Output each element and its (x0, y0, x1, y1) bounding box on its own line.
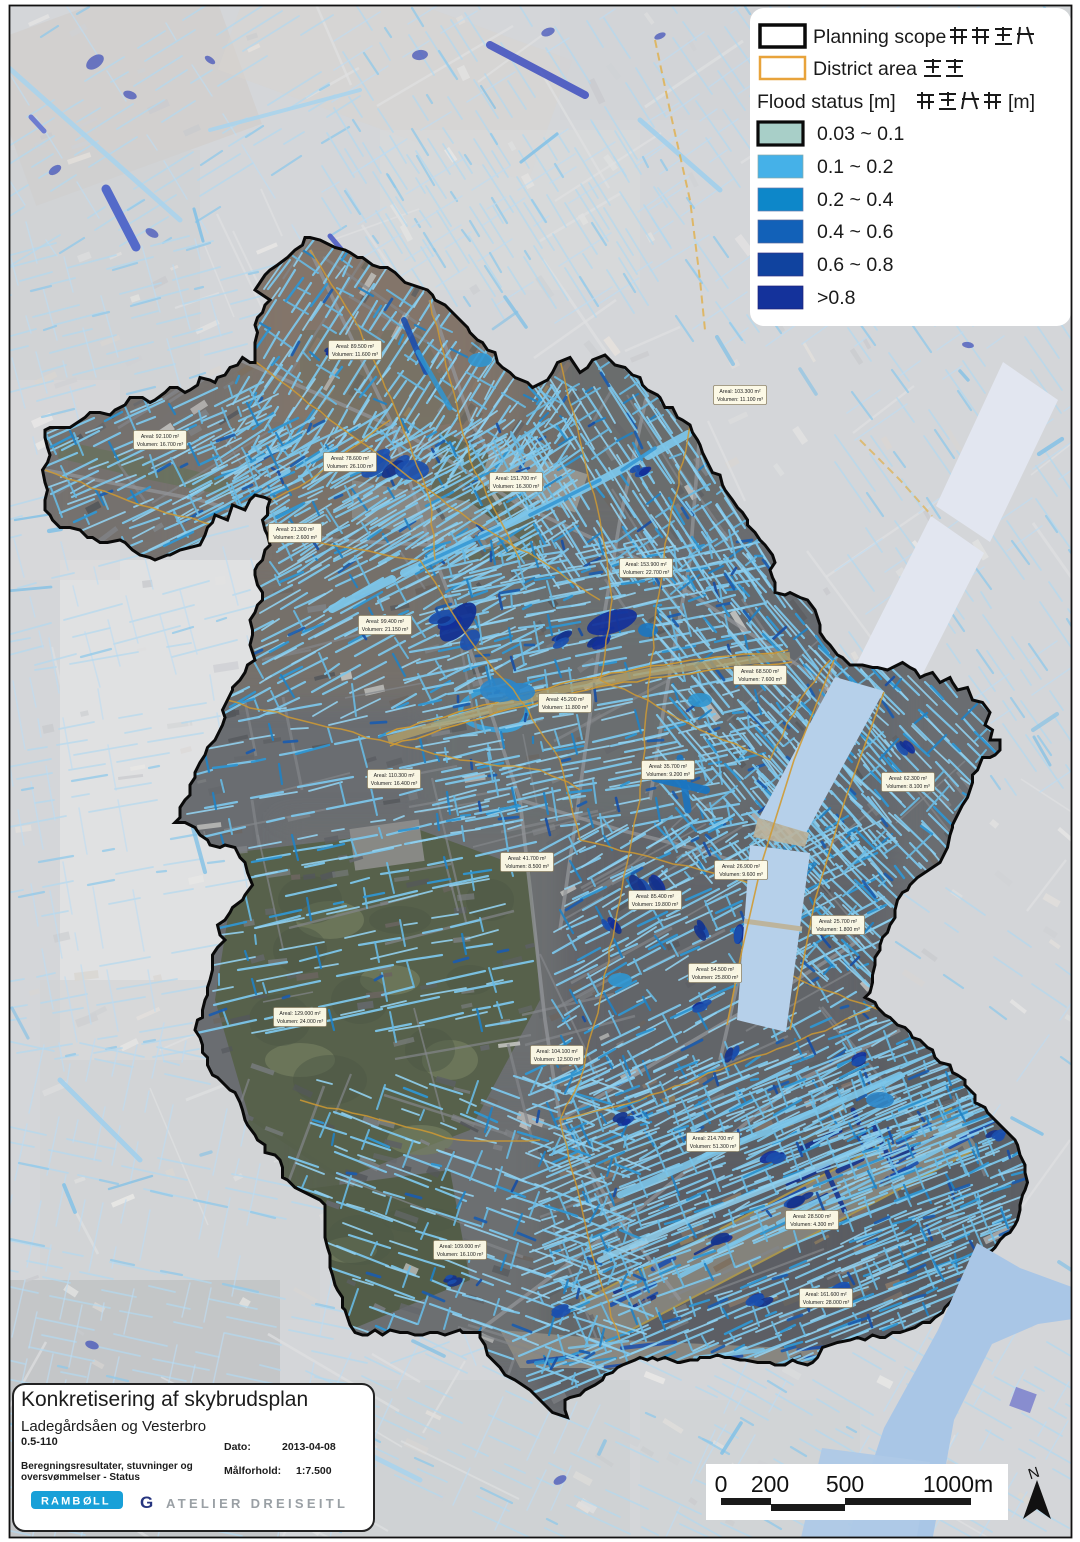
svg-text:Areal: 25.700 m²: Areal: 25.700 m² (819, 919, 858, 925)
svg-text:2013-04-08: 2013-04-08 (282, 1441, 336, 1453)
svg-text:Volumen: 9.200 m³: Volumen: 9.200 m³ (646, 772, 690, 778)
svg-text:500: 500 (826, 1471, 864, 1497)
svg-text:Areal: 78.600 m²: Areal: 78.600 m² (331, 456, 370, 462)
svg-text:ATELIER DREISEITL: ATELIER DREISEITL (166, 1496, 348, 1511)
svg-text:Konkretisering af skybrudsplan: Konkretisering af skybrudsplan (21, 1388, 308, 1411)
svg-text:Areal: 45.200 m²: Areal: 45.200 m² (546, 697, 585, 703)
svg-text:Areal: 85.400 m²: Areal: 85.400 m² (636, 894, 675, 900)
svg-text:Areal: 68.500 m²: Areal: 68.500 m² (741, 669, 780, 675)
svg-text:Areal: 41.700 m²: Areal: 41.700 m² (508, 856, 547, 862)
svg-text:Målforhold:: Målforhold: (224, 1465, 281, 1477)
svg-text:Areal: 129.000 m²: Areal: 129.000 m² (279, 1011, 321, 1017)
svg-text:Volumen: 12.500 m³: Volumen: 12.500 m³ (534, 1057, 581, 1063)
svg-text:Volumen: 7.600 m³: Volumen: 7.600 m³ (738, 677, 782, 683)
svg-text:Volumen: 28.000 m³: Volumen: 28.000 m³ (803, 1300, 850, 1306)
svg-text:Areal: 54.500 m²: Areal: 54.500 m² (696, 967, 735, 973)
svg-text:Ø: Ø (83, 1496, 92, 1508)
svg-text:Volumen: 2.600 m³: Volumen: 2.600 m³ (273, 535, 317, 541)
svg-text:Beregningsresultater, stuvning: Beregningsresultater, stuvninger og (21, 1461, 193, 1472)
svg-text:Volumen: 25.800 m³: Volumen: 25.800 m³ (692, 975, 739, 981)
svg-text:Volumen: 51.300 m³: Volumen: 51.300 m³ (690, 1144, 737, 1150)
svg-text:Volumen: 8.100 m³: Volumen: 8.100 m³ (886, 784, 930, 790)
svg-text:oversvømmelser - Status: oversvømmelser - Status (21, 1472, 140, 1483)
svg-text:Volumen: 4.300 m³: Volumen: 4.300 m³ (790, 1222, 834, 1228)
svg-text:Volumen: 24.000 m³: Volumen: 24.000 m³ (277, 1019, 324, 1025)
svg-text:Areal: 161.600 m²: Areal: 161.600 m² (805, 1292, 847, 1298)
svg-text:Volumen: 22.700 m³: Volumen: 22.700 m³ (623, 570, 670, 576)
svg-text:Volumen: 8.500 m³: Volumen: 8.500 m³ (505, 864, 549, 870)
svg-text:Areal: 21.300 m²: Areal: 21.300 m² (276, 527, 315, 533)
svg-text:0.5-110: 0.5-110 (21, 1436, 58, 1448)
svg-text:Planning scope: Planning scope (813, 26, 946, 48)
svg-text:Volumen: 21.150 m³: Volumen: 21.150 m³ (362, 627, 409, 633)
svg-text:0.6 ~ 0.8: 0.6 ~ 0.8 (817, 254, 893, 276)
svg-text:Areal: 103.300 m²: Areal: 103.300 m² (719, 389, 761, 395)
svg-text:Flood status [m]: Flood status [m] (757, 91, 896, 113)
svg-text:Volumen: 16.300 m³: Volumen: 16.300 m³ (493, 484, 540, 490)
svg-text:Volumen: 19.800 m³: Volumen: 19.800 m³ (632, 902, 679, 908)
svg-text:Volumen: 1.800 m³: Volumen: 1.800 m³ (816, 927, 860, 933)
svg-text:Volumen: 16.100 m³: Volumen: 16.100 m³ (437, 1252, 484, 1258)
svg-text:Areal: 151.700 m²: Areal: 151.700 m² (495, 476, 537, 482)
svg-text:LL: LL (93, 1496, 111, 1508)
svg-text:Areal: 28.500 m²: Areal: 28.500 m² (793, 1214, 832, 1220)
svg-text:Volumen: 16.400 m³: Volumen: 16.400 m³ (371, 781, 418, 787)
svg-text:RAMB: RAMB (41, 1496, 82, 1508)
svg-text:Areal: 104.100 m²: Areal: 104.100 m² (536, 1049, 578, 1055)
svg-text:District area: District area (813, 58, 917, 80)
svg-text:Volumen: 9.600 m³: Volumen: 9.600 m³ (719, 872, 763, 878)
svg-text:Areal: 99.400 m²: Areal: 99.400 m² (366, 619, 405, 625)
svg-text:Ladegårdsåen og Vesterbro: Ladegårdsåen og Vesterbro (21, 1418, 206, 1435)
svg-text:G: G (140, 1493, 153, 1512)
svg-text:1000m: 1000m (923, 1471, 993, 1497)
svg-text:Areal: 153.900 m²: Areal: 153.900 m² (625, 562, 667, 568)
svg-text:Areal: 26.900 m²: Areal: 26.900 m² (722, 864, 761, 870)
svg-text:Areal: 89.500 m²: Areal: 89.500 m² (336, 344, 375, 350)
svg-text:Areal: 214.700 m²: Areal: 214.700 m² (692, 1136, 734, 1142)
svg-text:Volumen: 11.100 m³: Volumen: 11.100 m³ (717, 397, 763, 403)
svg-text:[m]: [m] (1008, 91, 1035, 113)
svg-text:200: 200 (751, 1471, 789, 1497)
svg-text:Volumen: 11.800 m³: Volumen: 11.800 m³ (542, 705, 588, 711)
svg-text:Areal: 110.300 m²: Areal: 110.300 m² (374, 773, 415, 779)
svg-text:Areal: 92.100 m²: Areal: 92.100 m² (141, 434, 180, 440)
svg-text:Areal: 35.700 m²: Areal: 35.700 m² (649, 764, 688, 770)
svg-text:0.03 ~ 0.1: 0.03 ~ 0.1 (817, 123, 904, 145)
svg-text:>0.8: >0.8 (817, 287, 856, 309)
svg-text:0.4 ~ 0.6: 0.4 ~ 0.6 (817, 221, 893, 243)
svg-text:Areal: 62.300 m²: Areal: 62.300 m² (889, 776, 928, 782)
svg-text:Volumen: 26.100 m³: Volumen: 26.100 m³ (327, 464, 374, 470)
svg-text:Volumen: 16.700 m³: Volumen: 16.700 m³ (137, 442, 184, 448)
svg-text:Areal: 109.000 m²: Areal: 109.000 m² (439, 1244, 481, 1250)
svg-text:Dato:: Dato: (224, 1441, 251, 1453)
svg-text:0.1 ~ 0.2: 0.1 ~ 0.2 (817, 156, 893, 178)
svg-text:0.2 ~ 0.4: 0.2 ~ 0.4 (817, 189, 894, 211)
svg-text:1:7.500: 1:7.500 (296, 1465, 332, 1477)
svg-text:0: 0 (715, 1471, 728, 1497)
svg-text:Volumen: 11.600 m³: Volumen: 11.600 m³ (332, 352, 378, 358)
